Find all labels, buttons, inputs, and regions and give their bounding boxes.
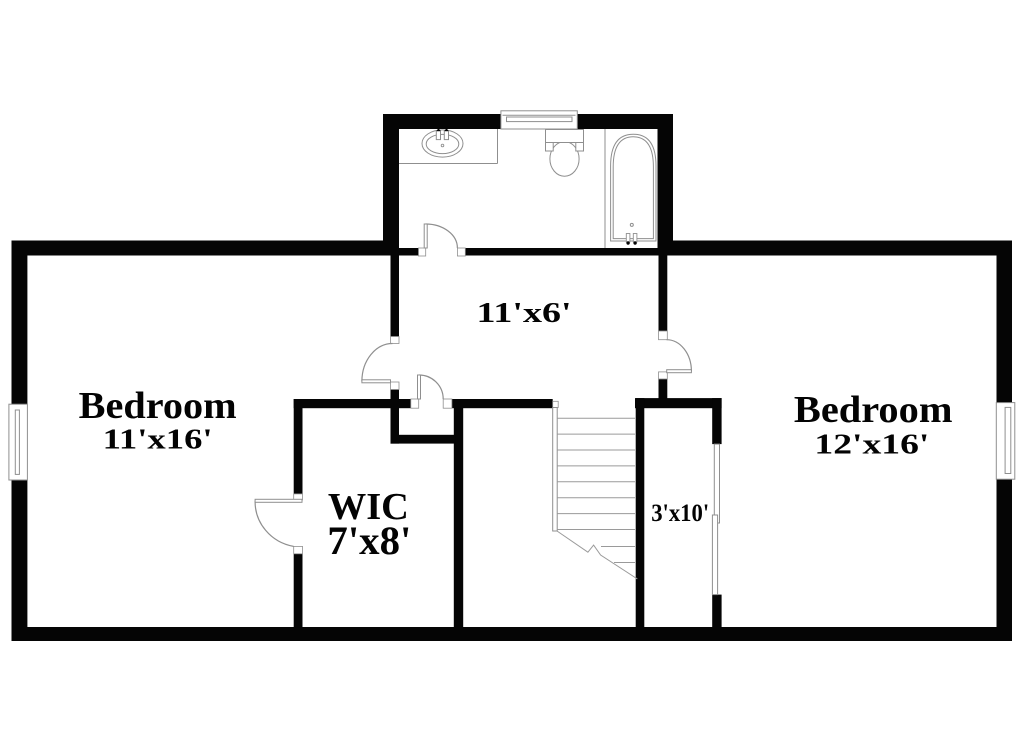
svg-text:11'x6': 11'x6' [477,298,572,329]
svg-text:12'x16': 12'x16' [814,430,929,461]
svg-text:11'x16': 11'x16' [103,424,213,455]
svg-text:Bedroom: Bedroom [794,389,953,431]
svg-text:Bedroom: Bedroom [79,385,237,427]
svg-text:3'x10': 3'x10' [651,500,709,527]
svg-text:7'x8': 7'x8' [327,518,411,563]
